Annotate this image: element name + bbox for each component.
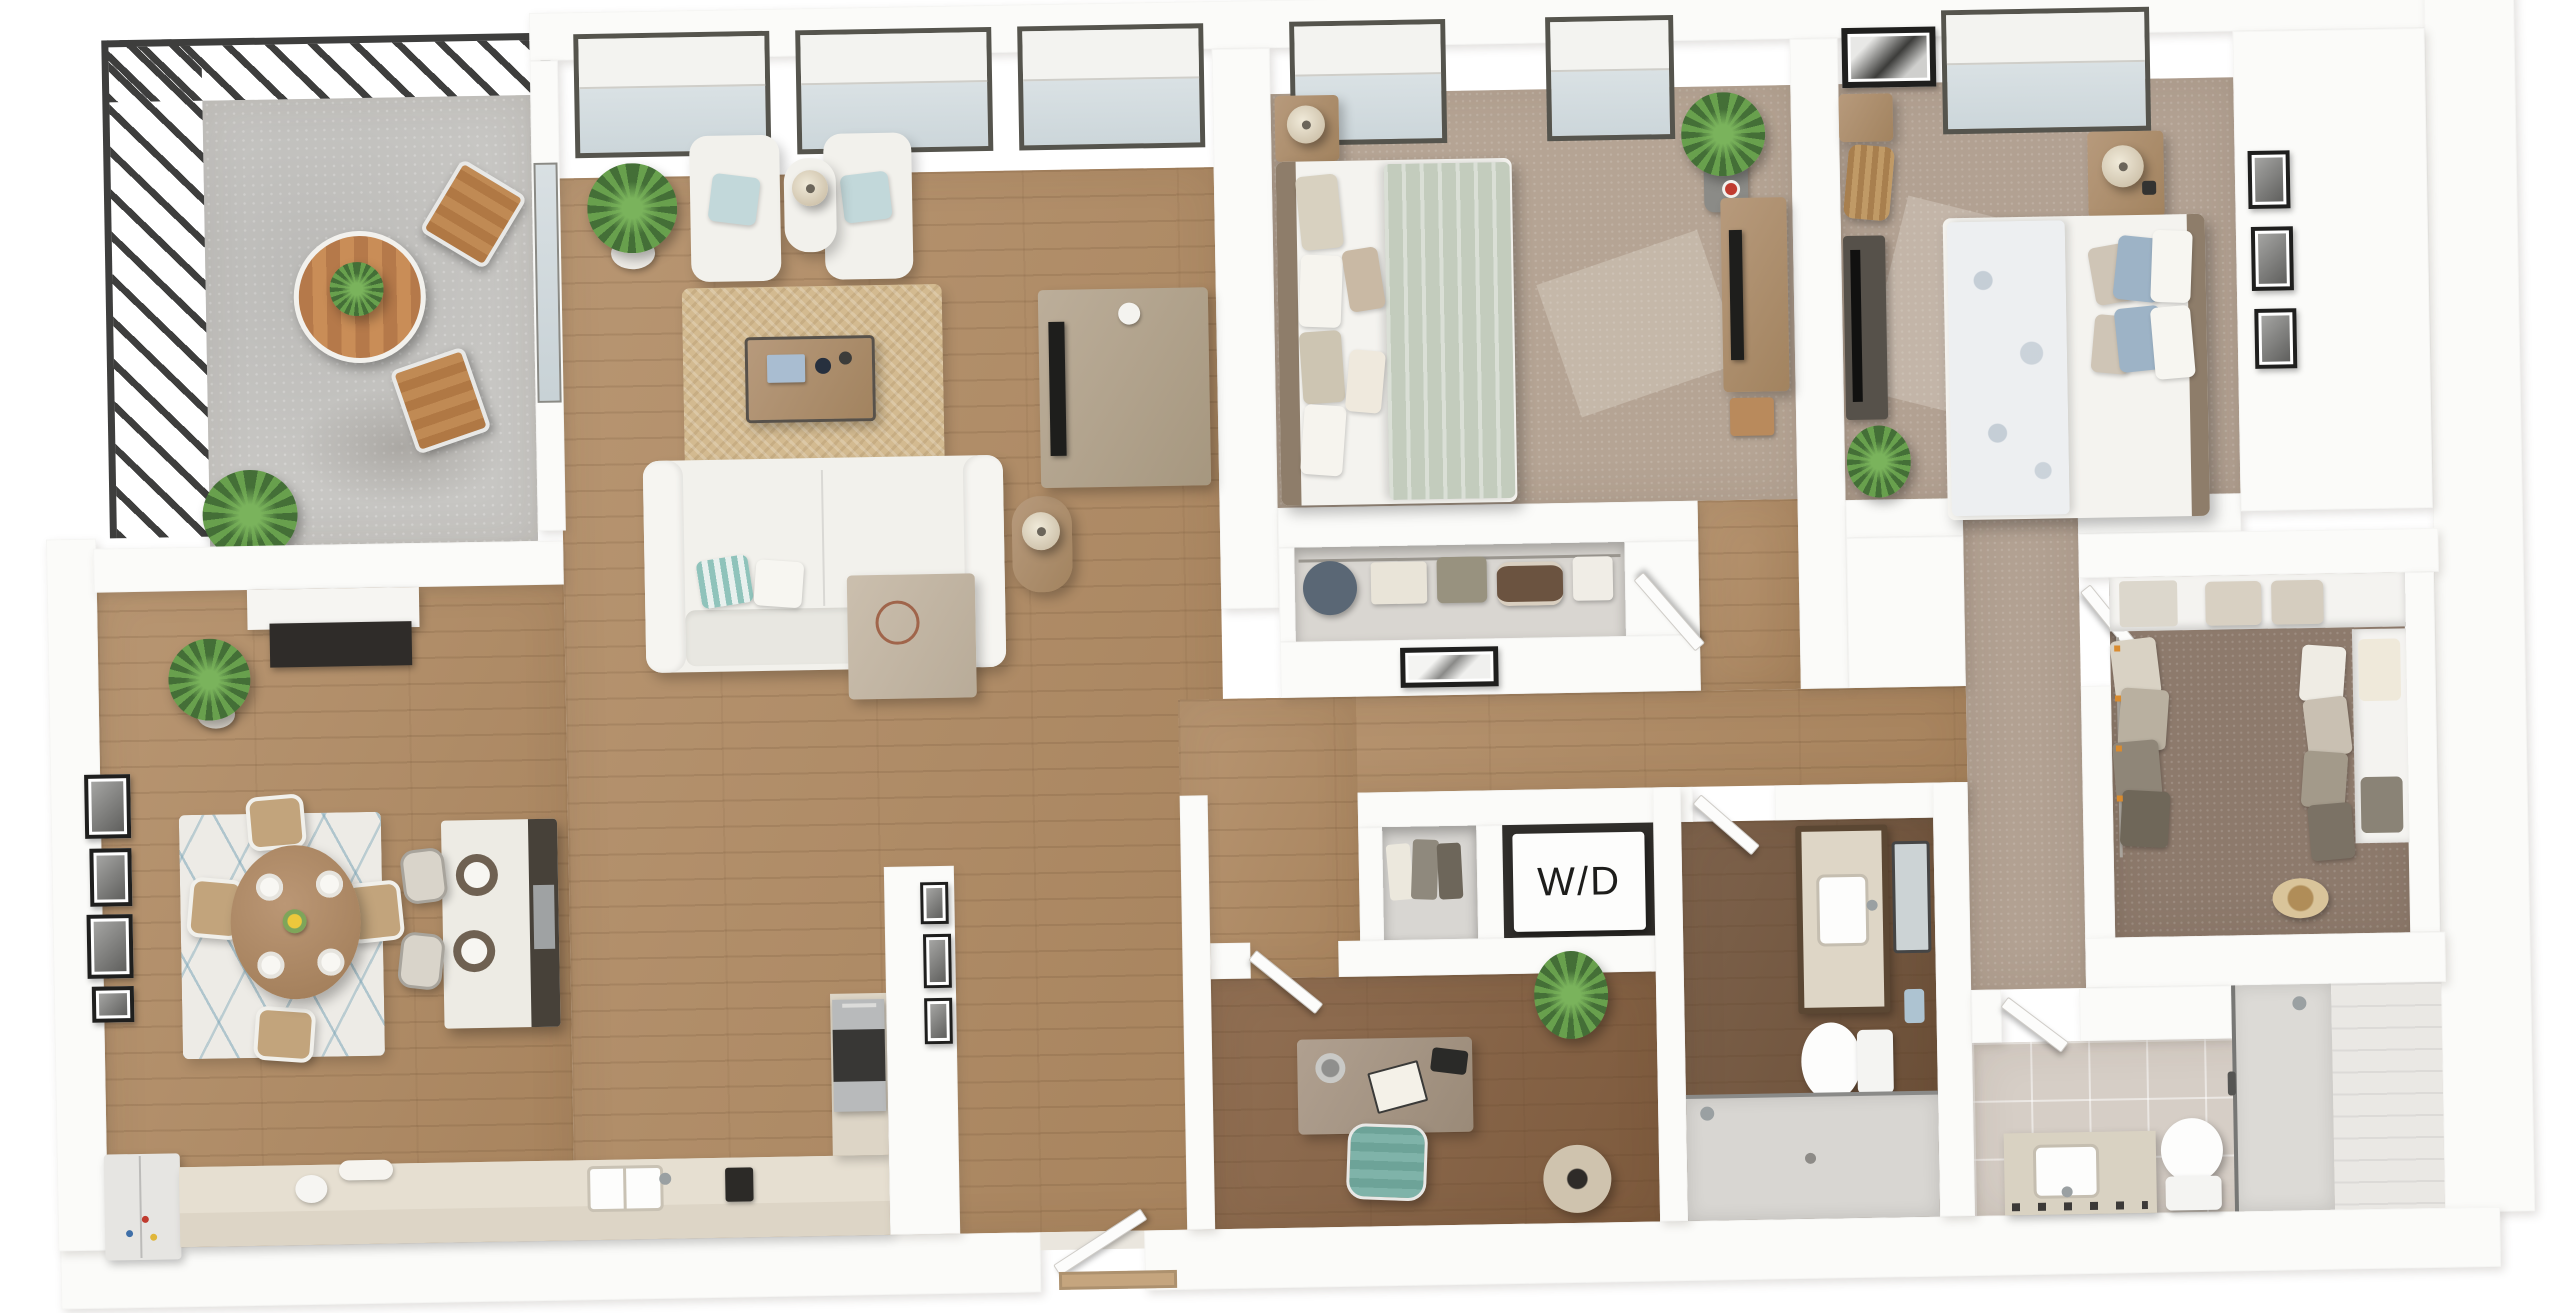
wall-wd-divider (1476, 825, 1504, 938)
wall-bedroom2-south-west (1846, 498, 1964, 538)
bedroom2-city-art (1841, 26, 1936, 88)
sofa-pillow-white (753, 559, 804, 608)
bedroom2-wall-art-2 (2251, 226, 2294, 291)
range-control-panel (833, 1029, 886, 1082)
fridge-magnet-yellow (150, 1234, 157, 1241)
wall-bedroom1-west (1212, 48, 1280, 609)
washer-dryer-label: W/D (1537, 859, 1622, 905)
walkin-towel-cream (2358, 638, 2401, 701)
island-stool-1 (399, 846, 449, 905)
walkin-clothes-e2 (2302, 695, 2353, 758)
bathroom1-mirror (1892, 841, 1932, 954)
fridge-magnet-red (142, 1216, 149, 1223)
art-photo (926, 888, 943, 918)
coat-closet-item-1 (1386, 843, 1415, 901)
hall-wall-art-1 (920, 882, 949, 924)
wall-bathroom2-north-west (1971, 989, 2002, 1043)
art-photo (2255, 157, 2284, 201)
wall-den-top-west (1210, 943, 1251, 980)
bathroom2-toilet-tank (2165, 1176, 2222, 1211)
den-office-chair (1346, 1123, 1429, 1202)
window-shade (1946, 12, 2145, 66)
art-photo (91, 781, 124, 832)
bedroom2-window (1941, 7, 2151, 135)
closet1-item-white (1572, 556, 1613, 601)
walkin-storage-box-1 (2205, 581, 2262, 626)
tv-screen (1048, 322, 1066, 456)
art-photo (99, 993, 127, 1015)
wall-walkin-east (2404, 572, 2440, 932)
lamp-finial (1036, 527, 1045, 536)
bedroom1-candle-tray (1730, 397, 1775, 436)
bedroom1-window-2 (1545, 15, 1675, 141)
window-shade (1022, 28, 1199, 81)
art-photo (96, 855, 125, 899)
bedroom1-pillow-1 (1295, 173, 1345, 251)
bathroom2-shower-tray (2231, 984, 2335, 1212)
lamp-finial (805, 184, 814, 193)
wall-balcony-south (93, 540, 564, 592)
island-stool-2 (397, 931, 447, 991)
walkin-towel-dark (2360, 776, 2403, 833)
coffee-table (745, 335, 876, 423)
art-photo (94, 921, 127, 972)
coffee-table-book (767, 354, 805, 383)
coffee-table-vase-2 (839, 351, 852, 364)
sofa-pillow-teal (695, 554, 754, 610)
art-photo (2258, 233, 2287, 283)
coat-closet-item-2 (1411, 839, 1439, 900)
wall-walkin-south (2085, 932, 2446, 988)
walkin-folded-stack (2119, 580, 2178, 627)
closet1-item-gray (1436, 556, 1487, 603)
bathroom1-towel-ring (1904, 989, 1925, 1023)
wall-den-top-east (1338, 935, 1656, 977)
sofa-armrest-left (643, 460, 687, 673)
bathroom1-toilet-tank (1857, 1029, 1894, 1094)
floor-plan: W/D (0, 0, 2560, 1313)
den-desk-speaker (1430, 1047, 1469, 1075)
dining-chair-north (245, 793, 307, 852)
dining-wall-art-3 (87, 914, 134, 979)
refrigerator (104, 1153, 182, 1260)
bedroom2-desk-chair (1843, 144, 1895, 222)
bedroom2-alarm-clock (2142, 181, 2156, 195)
walkin-clothes-w4 (2120, 790, 2171, 848)
wall-bathroom2-north-mid (2079, 985, 2232, 1041)
bedroom2-pillow-white-1 (2150, 230, 2192, 303)
bathroom2-shower-handle (2228, 1071, 2236, 1095)
walkin-clothes-e1 (2299, 644, 2347, 703)
lamp-finial (1301, 120, 1310, 129)
bedroom1-accent-pillow-2 (1345, 349, 1386, 414)
bedroom1-tv (1729, 230, 1744, 360)
hall-wall-art-3 (924, 998, 953, 1044)
armchair-1-pillow (707, 173, 760, 226)
bedroom2-desk (1838, 93, 1893, 142)
bedroom2-wall-art-3 (2254, 308, 2297, 369)
dining-wall-art-1 (84, 774, 131, 839)
art-photo (2261, 315, 2290, 361)
living-window-3 (1017, 23, 1205, 150)
knife-block (725, 1167, 754, 1201)
wall-wd-west (1358, 827, 1384, 940)
bedroom1-duvet-sage (1384, 162, 1516, 500)
armchair-2-pillow (839, 170, 892, 223)
window-shade (1294, 24, 1441, 77)
walkin-storage-box-2 (2271, 580, 2324, 625)
fireplace-glass (269, 621, 412, 667)
lamp-finial (2118, 162, 2127, 171)
walkin-clothes-e4 (2307, 802, 2356, 862)
dining-chair-south (253, 1005, 317, 1063)
bedroom2-wall-art-1 (2248, 150, 2291, 209)
bedroom1-pillow-3 (1299, 330, 1346, 405)
bathroom1-sink (1816, 874, 1869, 947)
wall-suite-block (1846, 536, 1966, 688)
bedroom2-pillow-white-2 (2150, 305, 2196, 380)
wall-closet1-west (1278, 548, 1296, 642)
window-shade (800, 32, 987, 85)
wall-closet1-east (1624, 541, 1700, 636)
hall-wall-art-2 (923, 934, 952, 988)
dining-wall-art-2 (89, 848, 132, 907)
bathroom2-shower-panel-wall (2331, 982, 2445, 1210)
wall-walkin-north (2078, 528, 2439, 578)
closet1-folded-stack (1371, 561, 1428, 604)
bedroom2-duvet-floral (1947, 220, 2070, 516)
island-built-in-appliance (533, 885, 555, 949)
range-handle (842, 1003, 876, 1008)
balcony-railing-left (101, 39, 210, 539)
bedroom-2-hall-carpet (1963, 496, 2087, 990)
bedroom-1-doorway-floor (1698, 499, 1801, 691)
hallway-sketch-art (1400, 646, 1499, 688)
dining-wall-art-4 (92, 986, 135, 1023)
bedroom1-pillow-4 (1300, 404, 1347, 477)
art-photo (1850, 36, 1927, 79)
wall-wd-top-west (1358, 787, 1694, 828)
bedroom1-pillow-2 (1299, 255, 1343, 328)
walkin-clothes-e3 (2301, 750, 2349, 809)
washer-dryer-unit: W/D (1512, 832, 1646, 932)
art-sketch (1408, 654, 1490, 679)
entry-doormat (1059, 1270, 1177, 1290)
closet1-duffel-bag (1497, 561, 1564, 606)
window-shade (578, 36, 765, 89)
balcony-glass-door (533, 163, 561, 403)
art-photo (930, 1004, 947, 1038)
coat-closet-item-3 (1437, 842, 1464, 899)
art-photo (929, 940, 946, 982)
cutting-board (339, 1160, 393, 1181)
window-shade (1550, 20, 1669, 72)
